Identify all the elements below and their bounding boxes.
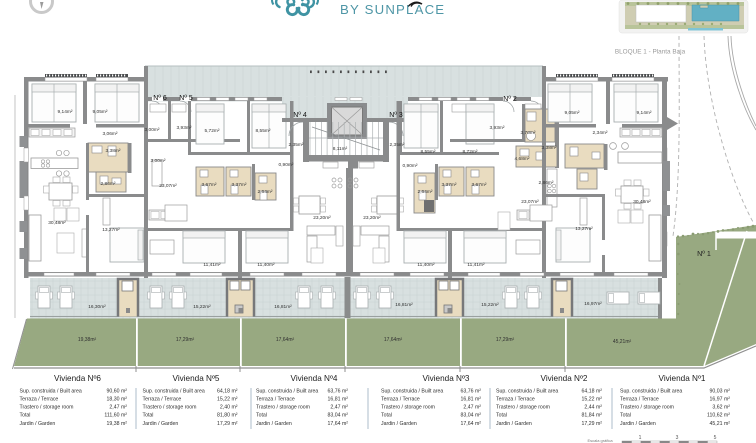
svg-text:3,67m²: 3,67m² xyxy=(472,182,487,188)
svg-text:4,68m²: 4,68m² xyxy=(515,156,530,162)
svg-text:Total: Total xyxy=(256,413,267,419)
svg-text:8,72m²: 8,72m² xyxy=(463,149,478,155)
svg-text:2,47 m²: 2,47 m² xyxy=(330,405,348,411)
svg-text:Jardin / Garden: Jardin / Garden xyxy=(256,421,292,427)
svg-text:17,64 m²: 17,64 m² xyxy=(328,421,349,427)
svg-text:0,90m²: 0,90m² xyxy=(279,162,294,168)
svg-text:3,37m²: 3,37m² xyxy=(442,182,457,188)
svg-text:23,07m²: 23,07m² xyxy=(159,183,177,189)
svg-text:Sup. construida / Built area: Sup. construida / Built area xyxy=(381,389,443,395)
svg-text:Sup. construida / Built area: Sup. construida / Built area xyxy=(256,389,318,395)
svg-text:45,21m²: 45,21m² xyxy=(613,339,632,345)
svg-text:2,35m²: 2,35m² xyxy=(390,142,405,148)
svg-text:3,06m²: 3,06m² xyxy=(103,131,118,137)
svg-text:3,67m²: 3,67m² xyxy=(202,182,217,188)
svg-text:Terraza / Terrace: Terraza / Terrace xyxy=(256,397,295,403)
svg-text:17,29m²: 17,29m² xyxy=(176,337,195,343)
svg-text:Terraza / Terrace: Terraza / Terrace xyxy=(496,397,535,403)
svg-text:3,37m²: 3,37m² xyxy=(232,182,247,188)
svg-text:18,30 m²: 18,30 m² xyxy=(107,397,128,403)
svg-text:2,47 m²: 2,47 m² xyxy=(109,405,127,411)
svg-text:17,64m²: 17,64m² xyxy=(276,337,295,343)
svg-text:30,48m²: 30,48m² xyxy=(633,199,651,205)
svg-text:16,81m²: 16,81m² xyxy=(274,304,292,310)
svg-text:9,14m²: 9,14m² xyxy=(637,110,652,116)
svg-text:11,41m²: 11,41m² xyxy=(467,262,485,268)
svg-text:16,30m²: 16,30m² xyxy=(88,304,106,310)
svg-text:2,86m²: 2,86m² xyxy=(539,180,554,186)
svg-text:3: 3 xyxy=(676,435,679,441)
svg-text:Total: Total xyxy=(496,413,507,419)
svg-text:1: 1 xyxy=(639,435,642,441)
svg-text:Sup. construida / Built area: Sup. construida / Built area xyxy=(620,389,682,395)
svg-text:8,11m²: 8,11m² xyxy=(333,146,348,152)
svg-text:2,44 m²: 2,44 m² xyxy=(584,405,602,411)
svg-text:3,00m²: 3,00m² xyxy=(151,158,166,164)
svg-text:Vivienda Nº4: Vivienda Nº4 xyxy=(291,374,338,383)
svg-text:23,20m²: 23,20m² xyxy=(313,215,331,221)
svg-text:Jardin / Garden: Jardin / Garden xyxy=(143,421,179,427)
svg-text:8,55m²: 8,55m² xyxy=(421,149,436,155)
svg-text:Trastero / storage room: Trastero / storage room xyxy=(620,405,674,411)
svg-text:110,62 m²: 110,62 m² xyxy=(707,413,730,419)
svg-text:Sup. construida / Built area: Sup. construida / Built area xyxy=(496,389,558,395)
svg-text:15,22m²: 15,22m² xyxy=(193,304,211,310)
svg-text:Vivienda Nº2: Vivienda Nº2 xyxy=(541,374,588,383)
svg-text:Trastero / storage room: Trastero / storage room xyxy=(381,405,435,411)
svg-text:13,27m²: 13,27m² xyxy=(575,226,593,232)
svg-text:81,80 m²: 81,80 m² xyxy=(217,413,238,419)
svg-text:2,40 m²: 2,40 m² xyxy=(220,405,238,411)
svg-text:Total: Total xyxy=(620,413,631,419)
svg-text:15,22m²: 15,22m² xyxy=(481,302,499,308)
svg-text:90,03 m²: 90,03 m² xyxy=(710,389,731,395)
svg-text:Jardin / Garden: Jardin / Garden xyxy=(620,421,656,427)
svg-text:45,21 m²: 45,21 m² xyxy=(710,421,731,427)
svg-text:63,76 m²: 63,76 m² xyxy=(328,389,349,395)
svg-text:63,76 m²: 63,76 m² xyxy=(461,389,482,395)
svg-text:2,64m²: 2,64m² xyxy=(258,189,273,195)
svg-text:Terraza / Terrace: Terraza / Terrace xyxy=(20,397,59,403)
svg-text:90,60 m²: 90,60 m² xyxy=(107,389,128,395)
svg-text:16,97m²: 16,97m² xyxy=(584,301,602,307)
svg-text:Trastero / storage room: Trastero / storage room xyxy=(496,405,550,411)
svg-text:3,38m²: 3,38m² xyxy=(542,145,557,151)
svg-text:Escala gráfica: Escala gráfica xyxy=(587,438,613,443)
svg-text:Nº 6: Nº 6 xyxy=(153,95,167,102)
svg-text:Sup. construida / Built area: Sup. construida / Built area xyxy=(143,389,205,395)
svg-text:0,90m²: 0,90m² xyxy=(403,163,418,169)
svg-text:3,00m²: 3,00m² xyxy=(145,127,160,133)
svg-text:16,81m²: 16,81m² xyxy=(395,302,413,308)
svg-text:15,22 m²: 15,22 m² xyxy=(582,397,603,403)
svg-text:Total: Total xyxy=(143,413,154,419)
svg-text:3,62 m²: 3,62 m² xyxy=(712,405,730,411)
svg-text:11,40m²: 11,40m² xyxy=(257,262,275,268)
svg-text:2,34m²: 2,34m² xyxy=(593,130,608,136)
svg-text:3,93m²: 3,93m² xyxy=(177,125,192,131)
svg-text:64,18 m²: 64,18 m² xyxy=(582,389,603,395)
svg-text:8,55m²: 8,55m² xyxy=(256,128,271,134)
svg-text:2,86m²: 2,86m² xyxy=(101,181,116,187)
svg-text:Nº 3: Nº 3 xyxy=(389,112,403,119)
svg-text:Nº 4: Nº 4 xyxy=(293,112,307,119)
svg-text:3,38m²: 3,38m² xyxy=(106,148,121,154)
svg-text:Total: Total xyxy=(20,413,31,419)
svg-text:BY SUNPLACE: BY SUNPLACE xyxy=(340,2,445,17)
svg-text:9,05m²: 9,05m² xyxy=(565,110,580,116)
svg-text:83,04 m²: 83,04 m² xyxy=(461,413,482,419)
svg-text:19,38 m²: 19,38 m² xyxy=(107,421,128,427)
svg-text:11,40m²: 11,40m² xyxy=(417,262,435,268)
svg-text:23,07m²: 23,07m² xyxy=(521,199,539,205)
svg-text:9,05m²: 9,05m² xyxy=(93,109,108,115)
svg-text:2,35m²: 2,35m² xyxy=(289,142,304,148)
svg-text:3,93m²: 3,93m² xyxy=(490,125,505,131)
svg-text:17,64 m²: 17,64 m² xyxy=(461,421,482,427)
svg-text:Trastero / storage room: Trastero / storage room xyxy=(256,405,310,411)
svg-text:Vivienda Nº6: Vivienda Nº6 xyxy=(54,374,101,383)
svg-text:Trastero / storage room: Trastero / storage room xyxy=(143,405,197,411)
svg-text:111,60 m²: 111,60 m² xyxy=(104,413,127,419)
svg-text:17,29 m²: 17,29 m² xyxy=(217,421,238,427)
svg-text:Terraza / Terrace: Terraza / Terrace xyxy=(143,397,182,403)
svg-text:Nº 5: Nº 5 xyxy=(179,95,193,102)
svg-text:Nº 1: Nº 1 xyxy=(697,249,711,258)
svg-text:23,20m²: 23,20m² xyxy=(363,215,381,221)
svg-text:BLOQUE 1 - Planta Baja: BLOQUE 1 - Planta Baja xyxy=(615,49,686,56)
svg-text:Terraza / Terrace: Terraza / Terrace xyxy=(620,397,659,403)
svg-text:17,29m²: 17,29m² xyxy=(496,337,515,343)
svg-text:Jardin / Garden: Jardin / Garden xyxy=(381,421,417,427)
svg-text:3,70m²: 3,70m² xyxy=(521,130,536,136)
svg-text:Sup. construida / Built area: Sup. construida / Built area xyxy=(20,389,82,395)
svg-text:16,81 m²: 16,81 m² xyxy=(461,397,482,403)
svg-text:17,29 m²: 17,29 m² xyxy=(582,421,603,427)
svg-text:Terraza / Terrace: Terraza / Terrace xyxy=(381,397,420,403)
svg-text:30,48m²: 30,48m² xyxy=(48,220,66,226)
svg-text:Total: Total xyxy=(381,413,392,419)
svg-text:Nº 2: Nº 2 xyxy=(503,96,517,103)
svg-text:19,38m²: 19,38m² xyxy=(78,337,97,343)
svg-text:13,27m²: 13,27m² xyxy=(102,227,120,233)
svg-text:2,64m²: 2,64m² xyxy=(418,189,433,195)
svg-text:Trastero / storage room: Trastero / storage room xyxy=(20,405,74,411)
svg-text:Jardin / Garden: Jardin / Garden xyxy=(20,421,56,427)
svg-text:83,04 m²: 83,04 m² xyxy=(328,413,349,419)
svg-text:81,84 m²: 81,84 m² xyxy=(582,413,603,419)
svg-text:17,64m²: 17,64m² xyxy=(384,337,403,343)
svg-text:Vivienda Nº1: Vivienda Nº1 xyxy=(659,374,706,383)
svg-text:64,18 m²: 64,18 m² xyxy=(217,389,238,395)
svg-text:2,47 m²: 2,47 m² xyxy=(463,405,481,411)
svg-text:16,97 m²: 16,97 m² xyxy=(710,397,731,403)
svg-text:11,41m²: 11,41m² xyxy=(203,262,221,268)
svg-text:5: 5 xyxy=(714,435,717,441)
svg-text:16,81 m²: 16,81 m² xyxy=(328,397,349,403)
svg-text:15,22 m²: 15,22 m² xyxy=(217,397,238,403)
svg-text:Vivienda Nº3: Vivienda Nº3 xyxy=(423,374,470,383)
svg-text:5,72m²: 5,72m² xyxy=(205,128,220,134)
svg-text:9,14m²: 9,14m² xyxy=(58,109,73,115)
svg-text:Vivienda Nº5: Vivienda Nº5 xyxy=(173,374,220,383)
svg-text:Jardin / Garden: Jardin / Garden xyxy=(496,421,532,427)
